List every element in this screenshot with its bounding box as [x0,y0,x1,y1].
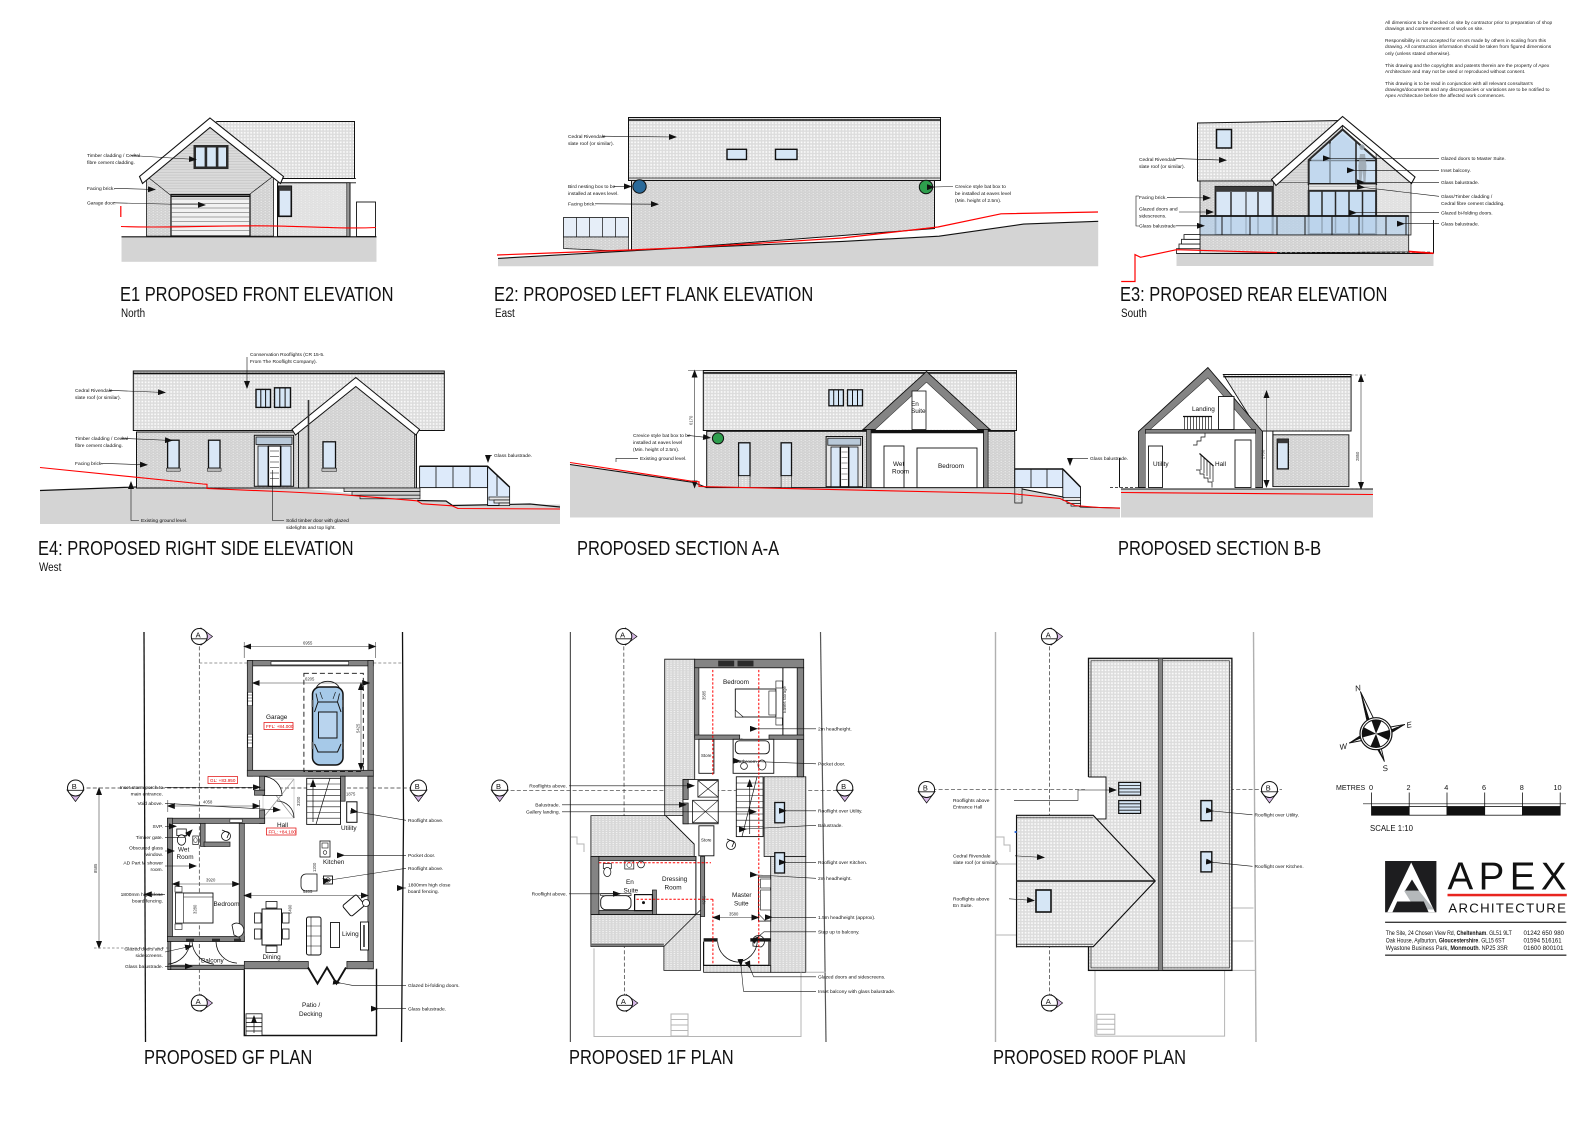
svg-text:Room: Room [892,469,909,476]
svg-text:Glazed doors to Master Suite.: Glazed doors to Master Suite. [1441,156,1506,162]
svg-text:A: A [1046,997,1051,1006]
svg-text:1800mm high close: 1800mm high close [121,892,164,898]
svg-text:Cedral Rivendale: Cedral Rivendale [568,134,606,140]
svg-text:sidescreens.: sidescreens. [136,953,163,959]
svg-text:3280: 3280 [193,904,198,914]
svg-text:3920: 3920 [206,878,216,883]
svg-text:slate roof (or similar).: slate roof (or similar). [1139,164,1185,170]
svg-text:1875: 1875 [346,792,356,797]
svg-text:Rooflight over Kitchen.: Rooflight over Kitchen. [818,860,867,866]
svg-text:Crevice style bat box to be: Crevice style bat box to be [633,433,691,439]
svg-text:N: N [1354,683,1362,693]
svg-text:Rooflight over Utility.: Rooflight over Utility. [818,809,862,815]
svg-text:Utility: Utility [1153,461,1169,468]
svg-text:6490: 6490 [288,904,293,914]
svg-text:2850: 2850 [1355,451,1360,461]
svg-text:Facing brick.: Facing brick. [87,186,115,192]
svg-text:main entrance.: main entrance. [131,792,163,798]
svg-text:Entrance Hall: Entrance Hall [953,805,982,811]
svg-text:0: 0 [1369,783,1373,792]
svg-text:Glazed doors and sidescreens.: Glazed doors and sidescreens. [818,975,885,981]
svg-text:En Suite.: En Suite. [953,903,973,909]
svg-text:4058: 4058 [203,800,213,805]
svg-text:8: 8 [1520,783,1524,792]
svg-text:Step up to balcony.: Step up to balcony. [818,930,860,936]
svg-text:slate roof (or similar).: slate roof (or similar). [953,860,999,866]
svg-text:6955: 6955 [303,641,313,646]
svg-text:Glazed bi-folding doors.: Glazed bi-folding doors. [408,983,460,989]
svg-text:window.: window. [146,852,163,858]
svg-text:2700: 2700 [1261,449,1266,459]
svg-text:SVP.: SVP. [152,824,163,830]
svg-text:Decking: Decking [299,1011,323,1018]
svg-text:Cedral fibre cement cladding.: Cedral fibre cement cladding. [1441,201,1505,207]
svg-text:installed at eaves level.: installed at eaves level. [568,191,619,197]
svg-text:1800mm high close: 1800mm high close [408,883,451,889]
svg-text:2: 2 [1407,783,1411,792]
svg-text:(Min. height of 2.5m).: (Min. height of 2.5m). [955,198,1001,204]
svg-text:Solid timber door with glazed: Solid timber door with glazed [286,518,349,524]
svg-text:B: B [415,782,420,791]
svg-text:A: A [196,631,201,640]
svg-text:FFL: +84.100: FFL: +84.100 [269,830,297,835]
svg-text:Store: Store [701,753,712,758]
svg-text:Glass/Timber cladding /: Glass/Timber cladding / [1441,194,1493,200]
svg-text:10: 10 [1554,783,1562,792]
svg-text:Glass balustrade.: Glass balustrade. [1441,180,1479,186]
svg-text:1200: 1200 [312,862,317,872]
svg-text:Crevice style bat box to: Crevice style bat box to [955,184,1006,190]
svg-text:B: B [923,784,928,793]
svg-text:Conservation Rooflights (CR 15: Conservation Rooflights (CR 15-5. [250,352,324,358]
svg-text:fibre cement cladding.: fibre cement cladding. [87,160,135,166]
svg-text:Inset storm porch to: Inset storm porch to [120,785,163,791]
svg-text:Cedral Rivendale: Cedral Rivendale [1139,157,1177,163]
svg-text:ARCHITECTURE: ARCHITECTURE [1448,900,1566,915]
svg-text:Facing brick.: Facing brick. [1139,195,1167,201]
svg-text:Bathroom: Bathroom [736,759,757,765]
svg-text:Glass balustrade.: Glass balustrade. [1441,222,1479,228]
svg-text:FFL: +84.000: FFL: +84.000 [266,724,294,729]
svg-text:3580: 3580 [729,912,739,917]
svg-text:3200: 3200 [296,796,301,806]
svg-text:Rooflight over Utility.: Rooflight over Utility. [1255,813,1299,819]
svg-text:B: B [1266,784,1271,793]
svg-text:Rooflight above.: Rooflight above. [408,818,443,824]
svg-text:Living: Living [342,931,359,938]
svg-text:Suite: Suite [734,901,749,908]
svg-text:Gallery landing.: Gallery landing. [526,810,560,816]
svg-text:Suite: Suite [911,408,926,415]
svg-text:Landing: Landing [1192,406,1215,413]
svg-text:6: 6 [1482,783,1486,792]
svg-text:Utility: Utility [341,825,357,832]
svg-text:6205: 6205 [303,889,313,894]
svg-text:4: 4 [1444,783,1448,792]
svg-text:A: A [620,631,625,640]
svg-text:2m headheight.: 2m headheight. [818,876,852,882]
svg-text:B: B [841,782,846,791]
svg-text:01242 650 980: 01242 650 980 [1524,930,1565,937]
svg-text:1.5m headheight (approx).: 1.5m headheight (approx). [818,915,875,921]
svg-text:Rooflights above: Rooflights above [953,798,990,804]
svg-text:Inset balcony.: Inset balcony. [1441,168,1471,174]
svg-text:Wet: Wet [178,847,189,854]
svg-text:Master: Master [732,892,752,899]
svg-text:Glazed doors and: Glazed doors and [1139,207,1178,213]
svg-text:2m headheight.: 2m headheight. [818,727,852,733]
svg-text:Timber cladding / Cedral: Timber cladding / Cedral [75,436,128,442]
svg-text:Balustrade.: Balustrade. [535,803,560,809]
svg-text:B: B [72,782,77,791]
svg-text:4935: 4935 [702,895,707,905]
svg-text:Glass balustrade.: Glass balustrade. [125,964,163,970]
svg-text:Glass balustrade: Glass balustrade [1139,224,1176,230]
svg-text:5425: 5425 [356,723,361,733]
svg-text:GL: +83.950: GL: +83.950 [210,778,236,783]
svg-text:B: B [496,782,501,791]
svg-text:01594 516161: 01594 516161 [1524,938,1563,945]
svg-text:Balustrade.: Balustrade. [818,823,843,829]
svg-text:Pocket door.: Pocket door. [818,762,845,768]
svg-text:slate roof (or similar).: slate roof (or similar). [568,141,614,147]
svg-text:E: E [1406,720,1414,730]
svg-text:Rooflights above.: Rooflights above. [529,784,567,790]
svg-text:Pocket door.: Pocket door. [408,853,435,859]
svg-text:Cedral Rivendale: Cedral Rivendale [75,388,113,394]
svg-text:01600 800101: 01600 800101 [1524,945,1565,952]
svg-text:Existing ground level.: Existing ground level. [640,456,687,462]
svg-text:METRES: METRES [1336,785,1366,792]
svg-text:AD Part M shower: AD Part M shower [123,861,163,867]
svg-text:Glazed bi-folding doors.: Glazed bi-folding doors. [1441,211,1493,217]
svg-text:3585: 3585 [702,690,707,700]
svg-text:Void above.: Void above. [137,801,163,807]
svg-text:Cedral Rivendale: Cedral Rivendale [953,854,991,860]
svg-text:Hall: Hall [1215,461,1226,468]
svg-text:be installed at eaves level: be installed at eaves level [955,191,1011,197]
svg-text:Bedroom: Bedroom [938,463,964,470]
svg-text:SCALE 1:10: SCALE 1:10 [1370,824,1414,833]
svg-text:8585: 8585 [93,863,98,873]
svg-text:Glazed doors and: Glazed doors and [124,947,163,953]
svg-text:En: En [911,401,919,408]
svg-text:A: A [621,997,626,1006]
svg-text:Timber gate.: Timber gate. [136,835,163,841]
svg-text:Dining: Dining [263,954,282,961]
svg-text:W: W [1339,741,1350,752]
svg-text:sidelights and top light.: sidelights and top light. [286,525,336,531]
svg-text:(Min. height of 2.5m).: (Min. height of 2.5m). [633,447,679,453]
svg-text:APEX: APEX [1448,856,1567,899]
svg-text:Suite: Suite [624,888,639,895]
svg-text:Glass balustrade.: Glass balustrade. [494,453,532,459]
svg-text:fibre cement cladding.: fibre cement cladding. [75,443,123,449]
svg-text:6170: 6170 [689,415,694,425]
svg-text:Timber cladding / Cedral: Timber cladding / Cedral [87,153,140,159]
svg-text:room.: room. [150,867,163,873]
svg-text:The Site, 24 Chosen View Rd, C: The Site, 24 Chosen View Rd, Cheltenham.… [1386,930,1512,937]
svg-text:Bedroom: Bedroom [723,679,749,686]
svg-text:installed at eaves level: installed at eaves level [633,440,682,446]
svg-text:Rooflight above.: Rooflight above. [408,866,443,872]
svg-text:Wet: Wet [893,461,904,468]
svg-text:Patio /: Patio / [302,1002,320,1009]
svg-text:Room: Room [665,885,682,892]
svg-text:Existing ground level.: Existing ground level. [141,518,188,524]
svg-text:Garage: Garage [266,714,288,721]
svg-text:sidescreens.: sidescreens. [1139,214,1166,220]
svg-text:Kitchen: Kitchen [323,859,345,866]
svg-text:Obscured glass: Obscured glass [129,846,164,852]
svg-text:A: A [196,997,201,1006]
svg-text:slate roof (or similar).: slate roof (or similar). [75,395,121,401]
svg-text:S: S [1382,763,1390,773]
svg-text:En: En [626,879,634,886]
svg-text:Rooflights above: Rooflights above [953,897,990,903]
svg-text:Rooflight above.: Rooflight above. [532,892,567,898]
svg-text:board fencing.: board fencing. [132,899,163,905]
svg-text:Inset balcony with glass balus: Inset balcony with glass balustrade. [818,989,895,995]
svg-text:board fencing.: board fencing. [408,889,439,895]
svg-text:Wyastone Business Park, Monmou: Wyastone Business Park, Monmouth. NP25 3… [1386,945,1508,952]
svg-text:Bedroom: Bedroom [214,901,240,908]
svg-text:Facing brick.: Facing brick. [568,202,596,208]
svg-text:Store: Store [701,838,712,843]
svg-text:Oak House, Aylburton, Gloucest: Oak House, Aylburton, Gloucestershire. G… [1386,938,1505,945]
svg-text:Hall: Hall [277,822,288,829]
svg-text:Rooflight over Kitchen.: Rooflight over Kitchen. [1255,864,1304,870]
svg-text:Bird nesting box to be: Bird nesting box to be [568,184,616,190]
svg-text:Glass balustrade.: Glass balustrade. [408,1007,446,1013]
svg-text:From The Rooflight Company).: From The Rooflight Company). [250,359,317,365]
svg-text:Garage door.: Garage door. [87,201,116,207]
svg-text:6205: 6205 [305,677,315,682]
svg-text:Facing brick.: Facing brick. [75,461,103,467]
svg-text:A: A [1046,631,1051,640]
